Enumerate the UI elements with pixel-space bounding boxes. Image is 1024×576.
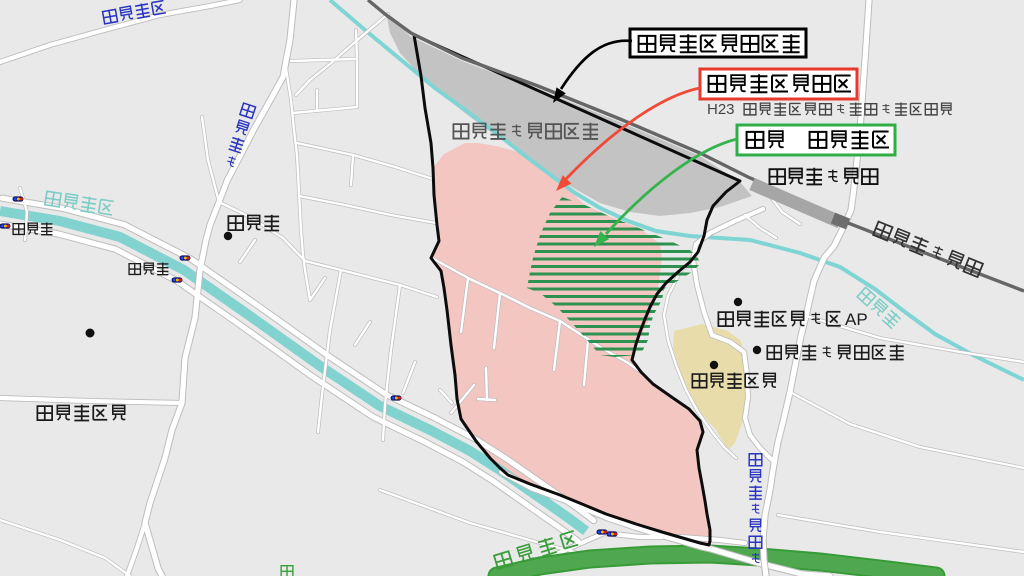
svg-text:AP: AP xyxy=(845,310,868,329)
svg-text:H23: H23 xyxy=(707,101,735,118)
